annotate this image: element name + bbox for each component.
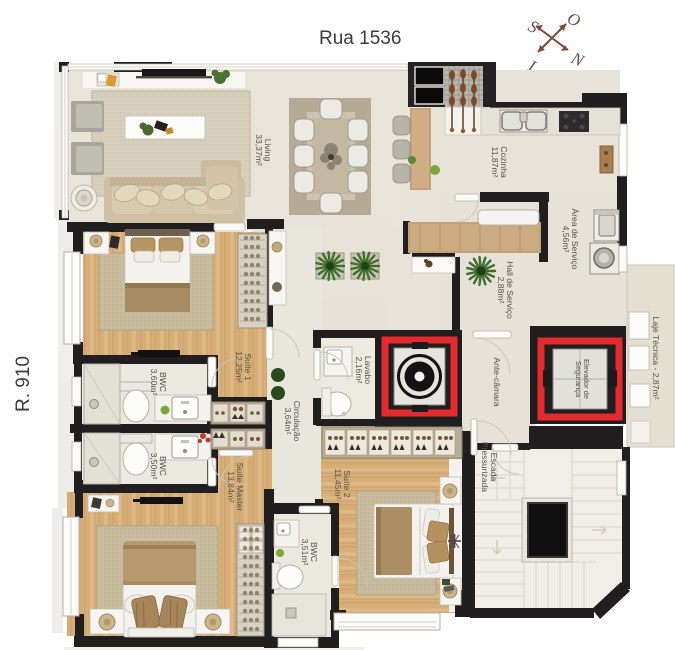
- svg-text:Ante-câmara: Ante-câmara: [492, 357, 502, 406]
- svg-text:Elevador deSegurança: Elevador deSegurança: [574, 359, 591, 399]
- svg-text:N: N: [567, 48, 588, 71]
- svg-text:Laje Técnica - 2,87m²: Laje Técnica - 2,87m²: [651, 317, 661, 400]
- svg-text:R. 910: R. 910: [13, 356, 34, 412]
- svg-text:Living33,37m²: Living33,37m²: [254, 134, 273, 166]
- svg-text:Cozinha11,87m²: Cozinha11,87m²: [490, 146, 509, 178]
- svg-text:Rua 1536: Rua 1536: [319, 28, 401, 49]
- svg-text:BWC3,50m²: BWC3,50m²: [149, 453, 168, 480]
- svg-text:Lavabo2,16m²: Lavabo2,16m²: [354, 356, 373, 384]
- svg-text:BWC3,51m²: BWC3,51m²: [300, 539, 319, 566]
- svg-text:O: O: [564, 8, 583, 30]
- svg-text:Suíte 211,45m²: Suíte 211,45m²: [333, 469, 352, 500]
- svg-text:BWC3,60m²: BWC3,60m²: [149, 369, 168, 396]
- svg-text:Suíte 112,25m²: Suíte 112,25m²: [234, 351, 253, 383]
